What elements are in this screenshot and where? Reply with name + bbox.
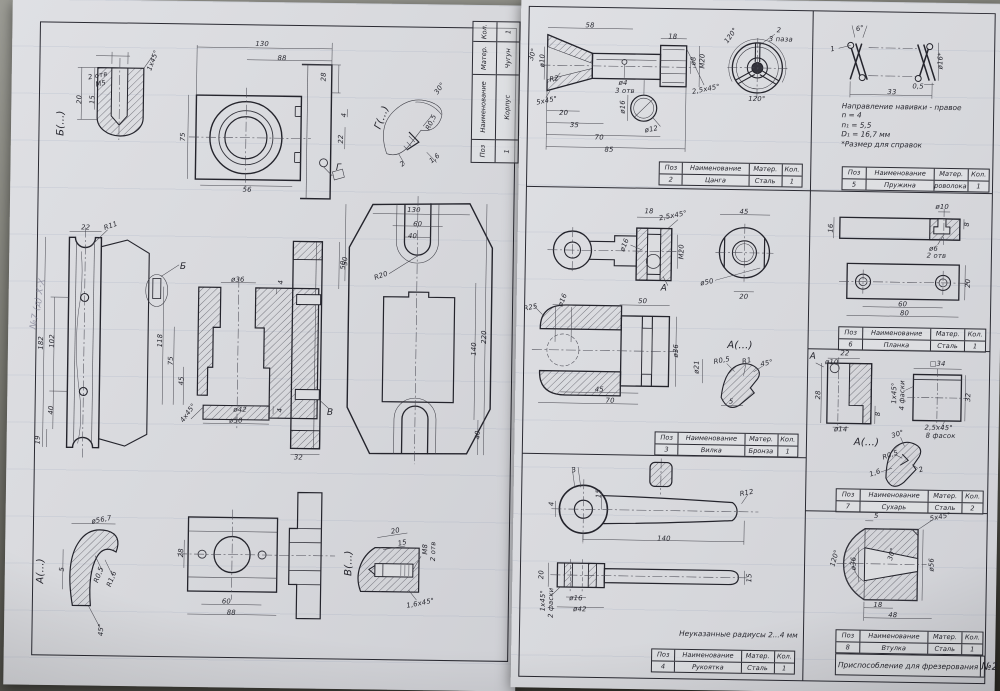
- dim-label: Г: [336, 163, 341, 173]
- dim-layer-vtulka: 55x45°120°ø3630°ø561848: [511, 0, 1000, 691]
- dim-label: 30°: [886, 547, 897, 561]
- dim-label: 1x45°: [145, 49, 160, 72]
- dim-label: 15: [88, 95, 96, 104]
- dim-label: 50: [341, 257, 349, 266]
- dim-label: 5: [874, 512, 879, 520]
- dim-label: ø56,7: [91, 514, 112, 526]
- dim-label: 102: [48, 334, 56, 348]
- dim-label: Г(...): [373, 104, 392, 130]
- dim-label: 182: [37, 336, 45, 350]
- dim-label: 130: [407, 206, 421, 214]
- dim-label: 48: [888, 611, 897, 619]
- drawing-sheet-left: ПозНаименованиеМатер.Кол.1КорпусЧугун1 Б…: [3, 0, 525, 691]
- dim-label: 20: [390, 526, 400, 536]
- dim-label: 75: [167, 356, 175, 365]
- dim-label: 118: [156, 334, 164, 348]
- dim-label: 1,6x45°: [406, 597, 435, 610]
- dim-label: ø56: [927, 558, 935, 572]
- dim-label: 4: [277, 280, 285, 285]
- dim-label: 5x45°: [929, 511, 952, 523]
- dim-label: R1,6: [105, 570, 118, 588]
- dim-label: ø36: [231, 276, 245, 284]
- dim-label: 2 отв: [429, 542, 437, 562]
- dim-label: В(...): [343, 550, 354, 576]
- dim-label: Б: [180, 262, 187, 272]
- dim-label: 19: [34, 435, 42, 444]
- dim-label: 40: [408, 232, 417, 240]
- drawing-sheet-right: ПозНаименованиеМатер.Кол.2ЦангаСталь1 По…: [511, 0, 1000, 691]
- dim-label: R0,5: [424, 113, 438, 131]
- dim-label: R20: [373, 270, 389, 282]
- dim-label: 45: [177, 376, 185, 385]
- dim-label: 2: [398, 159, 407, 168]
- dim-label: 88: [277, 54, 286, 62]
- dim-label: M8: [421, 544, 429, 555]
- dim-label: 88: [227, 609, 236, 617]
- dim-label: 56: [243, 186, 252, 194]
- dim-label: 120°: [828, 549, 840, 568]
- dim-label: В: [327, 408, 334, 418]
- dim-label: ø42: [233, 406, 247, 414]
- dim-label: 45°: [97, 623, 105, 636]
- dim-label: 40: [474, 430, 482, 439]
- dim-label: 140: [470, 342, 478, 356]
- dim-label: ø50: [229, 417, 243, 425]
- dim-label: 28: [177, 548, 185, 557]
- dim-label: 15: [397, 538, 407, 548]
- dim-label: 32: [294, 453, 303, 461]
- dim-label: 60: [413, 220, 422, 228]
- dim-label: 5: [58, 567, 66, 572]
- dim-label: 22: [337, 134, 345, 143]
- dim-label: 1,6: [428, 152, 442, 165]
- dim-layer-sheet1: Б(...)2 отвM51x45°201513088287556224ГГ(.…: [3, 0, 525, 691]
- dim-label: R0,5: [92, 566, 105, 584]
- scanned-drawing-photo: ПозНаименованиеМатер.Кол.1КорпусЧугун1 Б…: [0, 0, 1000, 691]
- dim-label: 22: [81, 223, 90, 231]
- dim-label: 30°: [433, 81, 447, 96]
- dim-label: 130: [255, 40, 269, 48]
- dim-label: 40: [47, 405, 55, 414]
- dim-label: R11: [103, 220, 119, 232]
- dim-label: M5: [95, 79, 107, 89]
- dim-label: 220: [480, 330, 488, 344]
- dim-label: 4: [340, 113, 348, 118]
- dim-label: 28: [320, 72, 328, 81]
- dim-label: 75: [179, 132, 187, 141]
- dim-label: А(...): [35, 558, 46, 584]
- dim-label: 4x45°: [179, 402, 198, 424]
- dim-label: 18: [873, 601, 882, 609]
- dim-label: 20: [75, 95, 83, 104]
- dim-label: 4: [276, 408, 284, 413]
- dim-label: Б(...): [55, 110, 66, 136]
- dim-label: ø36: [849, 557, 857, 571]
- dim-label: 60: [222, 597, 231, 605]
